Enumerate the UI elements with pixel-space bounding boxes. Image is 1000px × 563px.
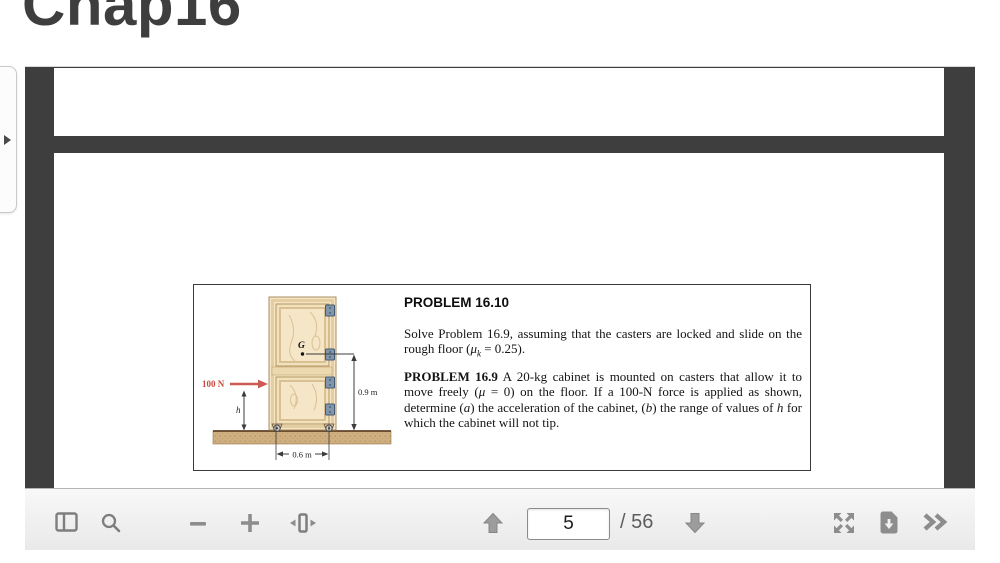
pdf-toolbar: / 56 <box>25 488 975 550</box>
floor <box>213 431 391 444</box>
force-arrow: 100 N <box>202 379 268 389</box>
zoom-out-button[interactable] <box>190 521 206 526</box>
pdf-page-previous <box>54 68 944 136</box>
problem-paragraph-1: Solve Problem 16.9, assuming that the ca… <box>404 326 802 362</box>
cabinet <box>269 297 336 431</box>
download-icon <box>879 510 899 535</box>
sidebar-toggle-icon <box>55 512 78 532</box>
problem-box: G 100 N 0.9 m <box>193 284 811 471</box>
previous-page-button[interactable] <box>482 511 504 535</box>
chevron-right-icon <box>4 135 11 145</box>
problem-figure: G 100 N 0.9 m <box>194 285 404 469</box>
problem-paragraph-2: PROBLEM 16.9 A 20-kg cabinet is mounted … <box>404 369 802 430</box>
more-tools-button[interactable] <box>922 512 948 532</box>
fit-width-button[interactable] <box>289 512 317 534</box>
toggle-sidebar-button[interactable] <box>54 510 78 534</box>
height-dim-label: 0.9 m <box>358 387 378 397</box>
page-number-input[interactable] <box>527 508 610 540</box>
double-chevron-icon <box>922 512 948 532</box>
problem-heading: PROBLEM 16.10 <box>404 295 802 310</box>
h-dimension: h <box>236 391 247 431</box>
page-count-label: / 56 <box>620 511 653 534</box>
page-title: Chap16 <box>22 0 242 35</box>
sidebar-expand-tab[interactable] <box>0 66 17 213</box>
problem-text: PROBLEM 16.10 Solve Problem 16.9, assumi… <box>404 295 802 430</box>
search-icon <box>100 512 122 534</box>
cabinet-figure-svg: G 100 N 0.9 m <box>194 285 404 469</box>
h-dim-label: h <box>236 405 241 415</box>
force-label: 100 N <box>202 379 225 389</box>
search-button[interactable] <box>100 511 122 534</box>
minus-icon <box>190 522 206 526</box>
fullscreen-button[interactable] <box>832 511 856 535</box>
plus-icon <box>241 514 259 532</box>
fit-width-icon <box>289 512 317 534</box>
g-label: G <box>298 341 305 351</box>
expand-icon <box>832 511 856 535</box>
pdf-viewer: G 100 N 0.9 m <box>25 66 975 550</box>
download-button[interactable] <box>879 510 899 535</box>
pdf-stage: G 100 N 0.9 m <box>25 67 975 488</box>
arrow-up-icon <box>482 512 504 534</box>
pdf-page-current: G 100 N 0.9 m <box>54 153 944 488</box>
width-dim-label: 0.6 m <box>292 450 312 460</box>
arrow-down-icon <box>684 512 706 534</box>
zoom-in-button[interactable] <box>241 514 259 532</box>
next-page-button[interactable] <box>684 511 706 535</box>
